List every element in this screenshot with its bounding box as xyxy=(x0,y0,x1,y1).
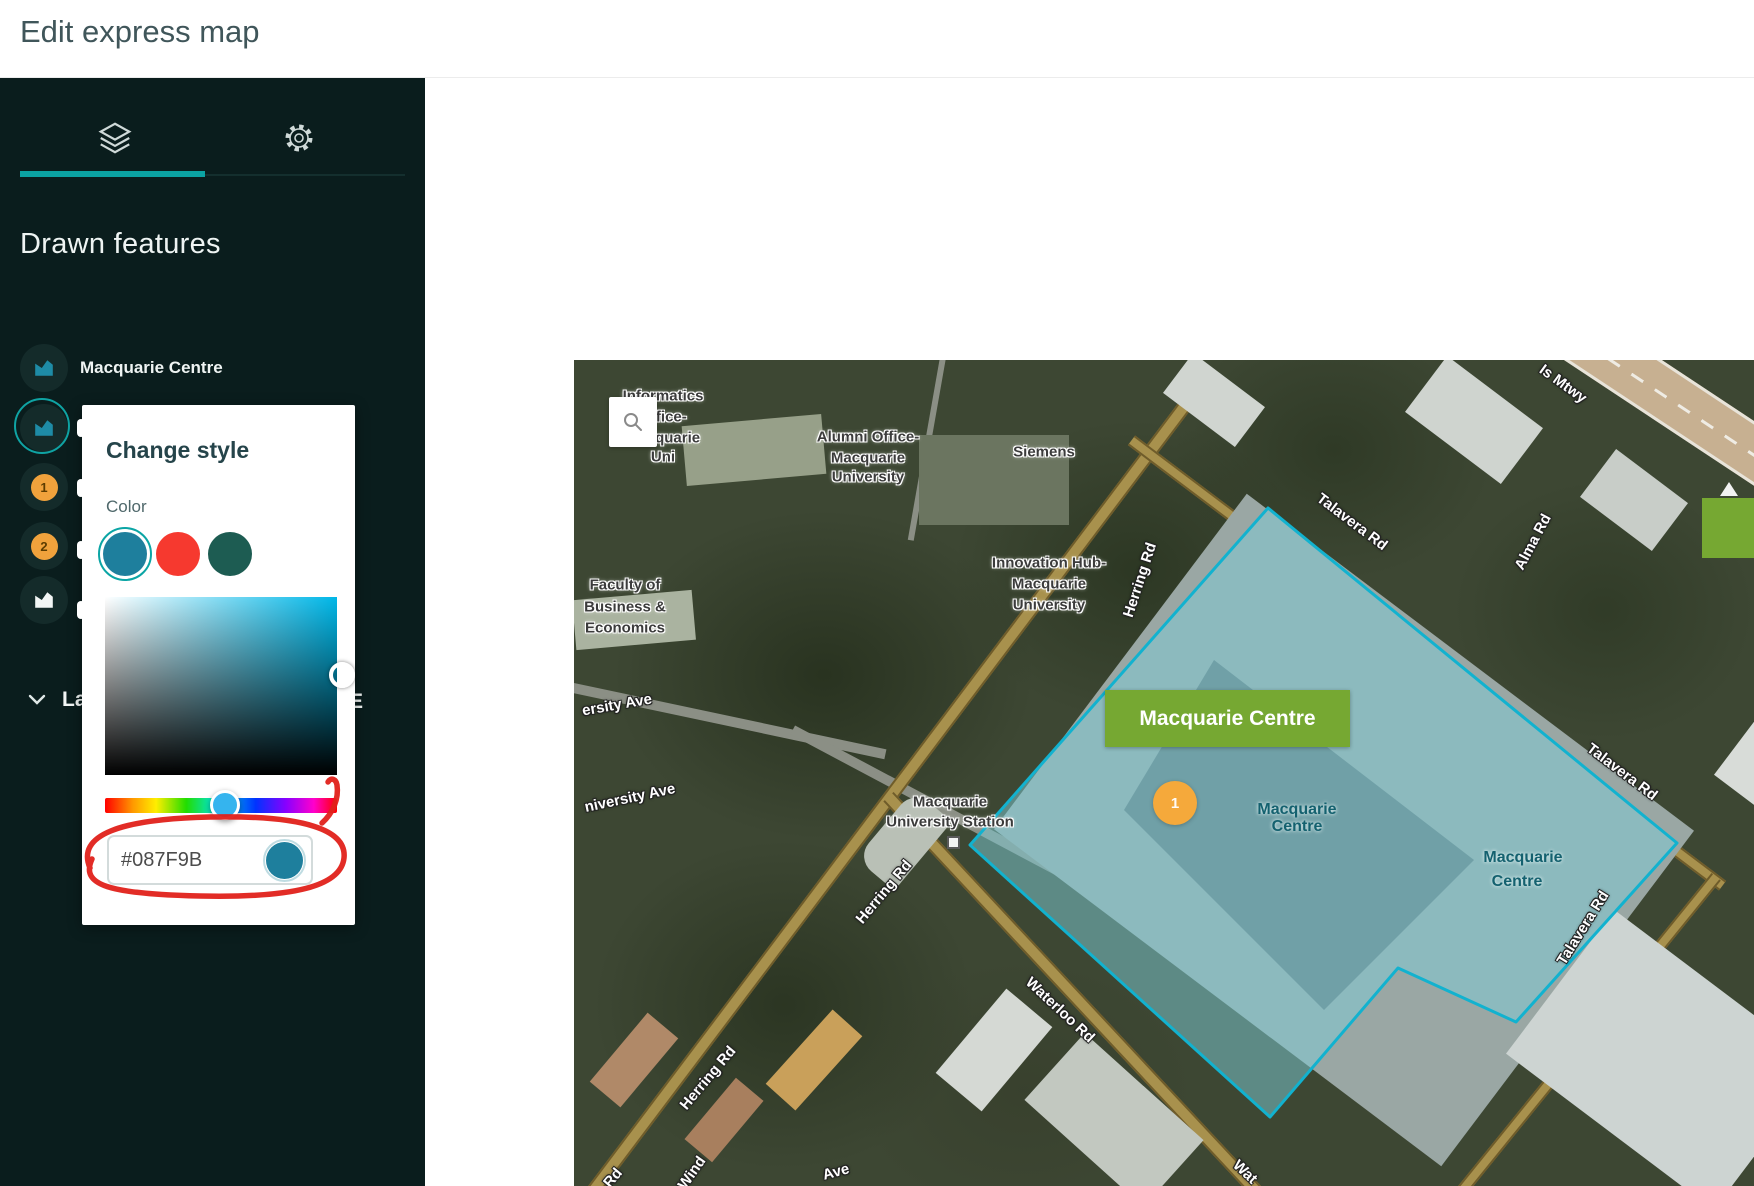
map-label: Alumni Office- xyxy=(817,429,920,446)
tab-layers[interactable] xyxy=(20,98,210,178)
tab-settings[interactable] xyxy=(204,98,394,178)
popup-nub xyxy=(77,419,85,437)
map-label: Macquarie xyxy=(1257,801,1336,819)
map-label: University xyxy=(1013,597,1086,614)
hex-color-input[interactable] xyxy=(121,843,251,877)
swatch-green[interactable] xyxy=(208,532,252,576)
swatch-teal[interactable] xyxy=(103,532,147,576)
numbered-point-icon: 1 xyxy=(20,463,68,511)
station-marker xyxy=(947,836,960,849)
map-label: Macquarie xyxy=(1483,849,1562,867)
point-badge: 2 xyxy=(31,533,58,560)
change-style-popup: Change style Color xyxy=(82,405,355,925)
map-label: Uni xyxy=(651,449,675,466)
chevron-down-icon xyxy=(28,694,46,706)
color-label: Color xyxy=(106,497,147,517)
edge-arrow xyxy=(1720,482,1738,496)
popup-nub xyxy=(77,479,85,497)
search-icon xyxy=(622,411,644,433)
drawn-features-heading: Drawn features xyxy=(20,228,221,261)
active-tab-underline xyxy=(20,171,205,177)
map-canvas[interactable]: InformaticsOffice-MacquarieUniAlumni Off… xyxy=(574,360,1754,1186)
popup-nub xyxy=(77,601,85,619)
polygon-feature-icon xyxy=(20,344,68,392)
map-label: Centre xyxy=(1492,873,1543,891)
app-header: Edit express map xyxy=(0,0,1754,78)
map-label: Economics xyxy=(585,620,665,637)
popup-title: Change style xyxy=(106,437,249,464)
gear-icon xyxy=(281,120,317,156)
hex-field-wrap xyxy=(107,835,313,885)
picker-handle[interactable] xyxy=(329,662,355,688)
point-badge: 1 xyxy=(31,474,58,501)
edge-feature-label xyxy=(1702,498,1754,558)
map-label: Innovation Hub- xyxy=(992,555,1106,572)
map-search-button[interactable] xyxy=(609,397,657,447)
feature-callout-label[interactable]: Macquarie Centre xyxy=(1105,690,1350,747)
saturation-value-picker[interactable] xyxy=(105,597,337,775)
map-label: Faculty of xyxy=(590,577,661,594)
map-label: Siemens xyxy=(1013,444,1075,461)
popup-nub xyxy=(77,541,85,559)
swatch-red[interactable] xyxy=(156,532,200,576)
map-label: Macquarie xyxy=(831,450,905,467)
map-label: Macquarie xyxy=(913,794,987,811)
page-title: Edit express map xyxy=(20,14,260,50)
map-label: Business & xyxy=(584,599,666,616)
map-label: University Station xyxy=(886,814,1014,831)
map-label: Macquarie xyxy=(1012,576,1086,593)
map-label: University xyxy=(832,469,905,486)
layers-icon xyxy=(96,119,134,157)
polygon-feature-icon-white xyxy=(20,576,68,624)
numbered-map-marker[interactable]: 1 xyxy=(1153,781,1197,825)
numbered-point-icon: 2 xyxy=(20,522,68,570)
feature-item-label: Macquarie Centre xyxy=(80,344,223,392)
selected-ring xyxy=(14,398,70,454)
hue-slider-handle[interactable] xyxy=(210,790,240,820)
swatch-row xyxy=(103,532,252,580)
map-label: Centre xyxy=(1272,818,1323,836)
current-color-swatch[interactable] xyxy=(266,842,303,879)
